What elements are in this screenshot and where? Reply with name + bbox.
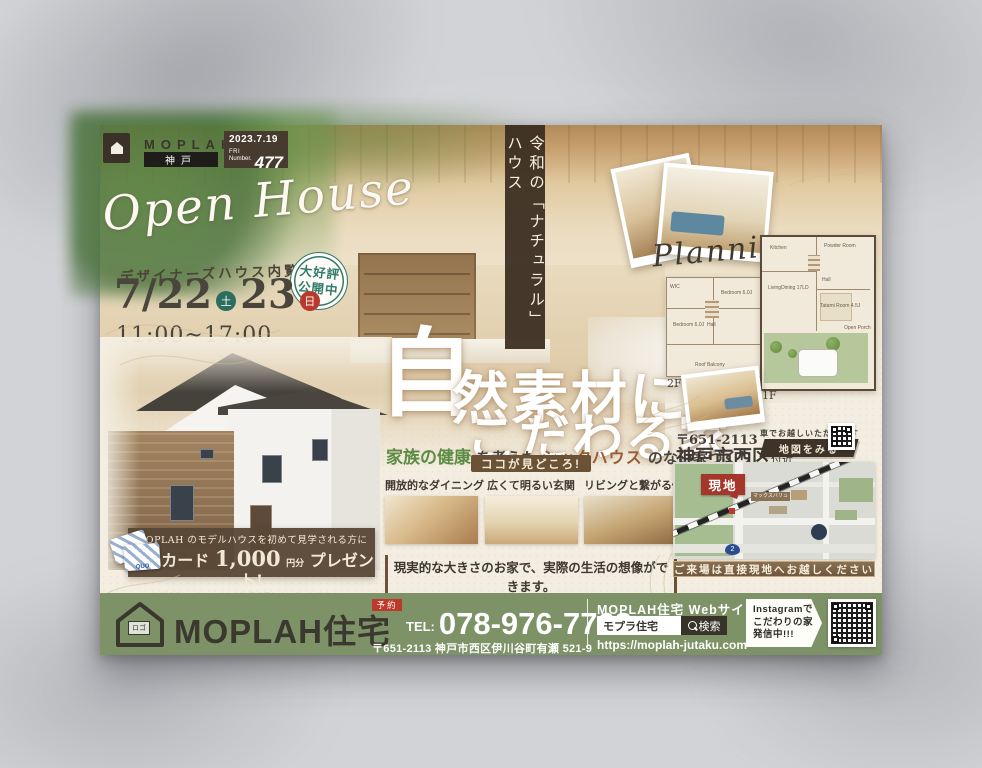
search-input[interactable]: モプラ住宅 — [597, 616, 681, 635]
green-block — [835, 510, 857, 520]
instagram-line: 発信中!!! — [753, 629, 822, 642]
car — [798, 349, 838, 377]
house-icon — [109, 140, 125, 156]
campaign-line2: クオカード 1,000 円分 プレゼント! — [128, 546, 375, 590]
room-label: WIC — [670, 284, 680, 290]
floor-plan-1f: Kitchen Powder Room LivingDining 17LD Ha… — [760, 235, 876, 391]
tel-label: TEL: — [406, 619, 435, 634]
landmark-label: マックスバリュ — [751, 492, 790, 501]
room-label: LivingDining 17LD — [768, 285, 809, 291]
green-block — [839, 478, 873, 502]
plan-wall — [816, 237, 817, 331]
map-qr-code[interactable] — [828, 423, 855, 450]
plan-wall — [762, 271, 816, 272]
stairs — [808, 255, 820, 271]
stage-background: MOPLAH 神戸 2023.7.19 FRI Number. 477 Open… — [0, 0, 982, 768]
room-label: Hall — [822, 277, 831, 283]
blue-sofa — [670, 211, 725, 236]
qr-finder — [865, 603, 872, 610]
instagram-line: Instagramで — [753, 604, 822, 617]
highlight-caption: リビングと繋がる個室 — [584, 477, 677, 493]
logo-placeholder: ロゴ — [128, 621, 150, 635]
window — [312, 439, 328, 461]
search-box: モプラ住宅 検索 — [597, 616, 727, 635]
search-button-label: 検索 — [699, 618, 721, 634]
branch-name: 神戸 — [144, 152, 218, 167]
highlight-caption: 広くて明るい玄関 — [485, 477, 578, 493]
highlights-footnote: 現実的な大きさのお家で、実際の生活の想像ができます。 — [385, 555, 677, 597]
window — [262, 455, 282, 483]
vertical-catch-banner: 令和の「ナチュラル」ハウス — [505, 125, 545, 349]
date-second: 23 — [240, 275, 296, 315]
campaign-box: QUO QUO MOPLAH のモデルハウスを初めて見学される方に クオカード … — [128, 528, 375, 577]
window — [170, 485, 194, 521]
stairs — [705, 300, 719, 318]
tree — [770, 341, 782, 353]
event-dates: 7/22 土 23 日 — [114, 275, 324, 315]
site-label: 現地 — [701, 474, 745, 495]
quo-card-label: QUO — [136, 564, 150, 571]
entrance-photo — [485, 496, 578, 544]
floor1-label: 1F — [762, 389, 777, 402]
footer-divider — [587, 599, 588, 649]
flyer: MOPLAH 神戸 2023.7.19 FRI Number. 477 Open… — [100, 125, 882, 655]
highlight-caption: 開放的なダイニング — [385, 477, 478, 493]
website-url[interactable]: https://moplah-jutaku.com — [597, 638, 747, 652]
instagram-line: こだわりの家 — [753, 617, 822, 630]
date-first: 7/22 — [114, 275, 212, 315]
visit-note-bar: ご来場は直接現地へお越しください — [673, 561, 875, 577]
room-label: Hall — [707, 322, 716, 328]
phone-row: TEL: 078-976-7763 — [370, 608, 632, 639]
search-button[interactable]: 検索 — [681, 616, 727, 635]
photo — [685, 370, 760, 422]
room-label: Tatami Room 4.5J — [820, 303, 860, 309]
building-block — [791, 490, 807, 500]
instagram-bubble: Instagramで こだわりの家 発信中!!! — [746, 599, 822, 647]
qr-finder — [832, 636, 839, 643]
qr-finder — [832, 603, 839, 610]
road — [673, 544, 875, 553]
highlight-item: 開放的なダイニング — [385, 477, 478, 544]
issue-date: 2023.7.19 — [229, 134, 278, 145]
campaign-unit: 円分 — [286, 559, 304, 569]
sunday-mark: 日 — [300, 291, 320, 311]
dining-photo — [385, 496, 478, 544]
highlight-item: リビングと繋がる個室 — [584, 477, 677, 544]
access-map: マックスバリュ 2 現地 — [673, 462, 875, 559]
campaign-amount: 1,000 — [215, 546, 281, 571]
room-label: Bedroom 6.0J — [673, 322, 704, 328]
route-shield: 2 — [725, 544, 740, 555]
room-label: Kitchen — [770, 245, 787, 251]
brand-logo-box — [103, 133, 130, 163]
highlights-section: ココが見どころ! 開放的なダイニング 広くて明るい玄関 リビングと繋がる個室 現… — [385, 455, 677, 593]
polaroid-photo-dining — [681, 365, 765, 431]
window — [200, 449, 214, 459]
plan-wall — [667, 344, 763, 345]
room-photo — [584, 496, 677, 544]
room-label: Powder Room — [824, 243, 856, 249]
photo-fade — [100, 337, 392, 392]
floor-plan-2f: WIC Bedroom 6.0J Hall Bedroom 6.0J Roof … — [666, 277, 764, 377]
site-marker — [729, 508, 735, 514]
instagram-qr-code[interactable] — [828, 599, 876, 647]
highlight-item: 広くて明るい玄関 — [485, 477, 578, 544]
visit-note-text: ご来場は直接現地へお越しください — [674, 562, 874, 577]
room-label: Open Porch — [844, 325, 871, 331]
quo-card: QUO — [123, 543, 161, 571]
tree — [788, 349, 797, 358]
blue-sofa — [724, 395, 753, 410]
room-label: Roof Balcony — [695, 362, 725, 368]
plan-wall — [816, 289, 870, 290]
search-icon — [688, 621, 697, 630]
building-block — [769, 506, 787, 514]
highlights-heading: ココが見どころ! — [471, 455, 591, 472]
footer-bar: ロゴ MOPLAH住宅 予約 TEL: 078-976-7763 〒651-21… — [100, 593, 882, 655]
saturday-mark: 土 — [216, 291, 236, 311]
qr-finder — [845, 426, 852, 433]
room-label: Bedroom 6.0J — [721, 290, 752, 296]
qr-finder — [831, 426, 838, 433]
interchange-circle — [811, 524, 827, 540]
brand-name: MOPLAH — [144, 137, 236, 152]
company-name: MOPLAH住宅 — [174, 605, 391, 653]
qr-finder — [831, 440, 838, 447]
floor2-label: 2F — [667, 377, 682, 390]
campaign-line1: MOPLAH のモデルハウスを初めて見学される方に — [128, 532, 375, 546]
issue-badge: 2023.7.19 FRI Number. 477 — [224, 131, 288, 168]
company-address: 〒651-2113 神戸市西区伊川谷町有瀬 521-9 — [372, 640, 592, 656]
issue-day: FRI — [229, 149, 240, 155]
